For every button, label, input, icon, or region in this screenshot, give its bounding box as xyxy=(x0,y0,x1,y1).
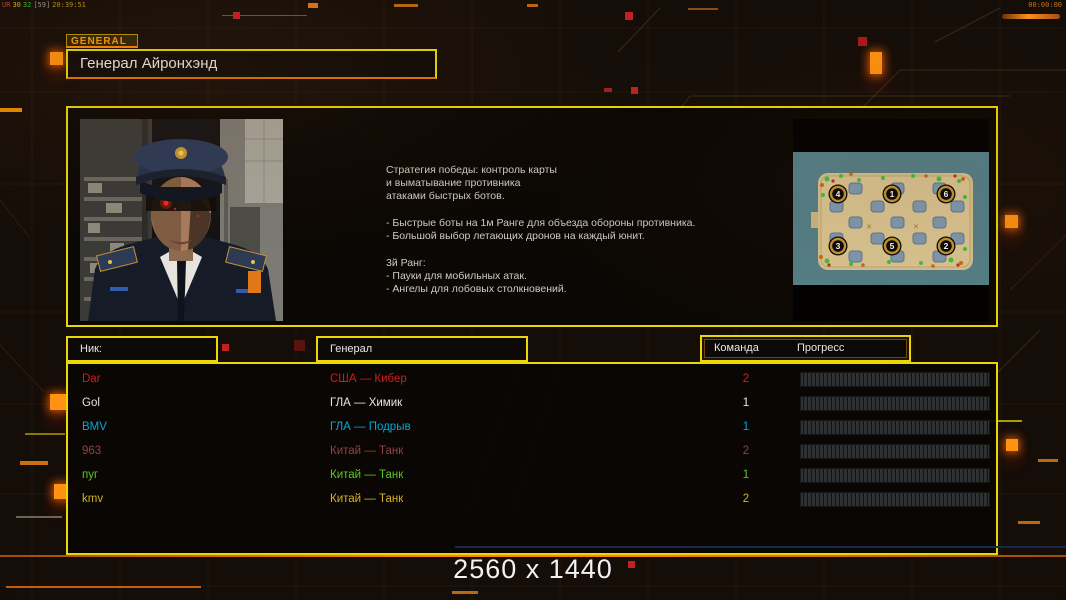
deco-glow-square xyxy=(1005,215,1018,228)
player-general: Китай — Танк xyxy=(330,493,403,505)
player-general: ГЛА — Подрыв xyxy=(330,421,411,433)
deco-dash xyxy=(20,461,48,465)
general-portrait xyxy=(80,119,283,321)
player-progress-bar xyxy=(800,444,990,459)
player-team: 1 xyxy=(736,421,756,433)
player-progress-bar xyxy=(800,396,990,411)
debug-value-2: 32 xyxy=(23,1,31,9)
lobby-screen: UR3032[59]20:39:51 00:00:00 GENERAL Гене… xyxy=(0,0,1066,600)
deco-glow-square xyxy=(50,394,66,410)
deco-navy-line xyxy=(455,546,1066,548)
deco-red-square xyxy=(625,12,633,20)
game-timer: 00:00:00 xyxy=(1028,1,1062,9)
svg-text:5: 5 xyxy=(890,241,895,251)
svg-text:1: 1 xyxy=(890,189,895,199)
map-preview: ✕✕ 4 1 6 3 5 2 xyxy=(793,119,989,321)
deco-glow-square xyxy=(1006,439,1018,451)
header-label: Ник: xyxy=(68,338,216,360)
player-row: Dar США — Кибер 2 xyxy=(68,368,996,392)
player-general: Китай — Танк xyxy=(330,469,403,481)
general-info-panel: Стратегия победы: контроль карты и вымат… xyxy=(66,106,998,327)
player-row: Gol ГЛА — Химик 1 xyxy=(68,392,996,416)
deco-glow-rect xyxy=(870,52,882,74)
svg-text:3: 3 xyxy=(836,241,841,251)
strategy-line: атаками быстрых ботов. xyxy=(386,190,806,203)
debug-stats-overlay: UR3032[59]20:39:51 xyxy=(2,1,88,9)
column-header-team-progress: Команда Прогресс xyxy=(700,335,911,362)
player-name: Dar xyxy=(82,373,101,385)
player-row: 963 Китай — Танк 2 xyxy=(68,440,996,464)
debug-value-1: 30 xyxy=(12,1,20,9)
player-team: 2 xyxy=(736,493,756,505)
player-name: 963 xyxy=(82,445,101,457)
general-title-box: Генерал Айронхэнд xyxy=(66,49,437,79)
strategy-line: - Быстрые боты на 1м Ранге для объезда о… xyxy=(386,217,806,230)
general-name: Генерал Айронхэнд xyxy=(68,51,435,77)
column-header-general: Генерал xyxy=(316,336,528,362)
deco-dash xyxy=(1038,459,1058,462)
player-name: kmv xyxy=(82,493,103,505)
player-team: 2 xyxy=(736,445,756,457)
deco-yellow-dash xyxy=(25,433,65,435)
deco-red-square xyxy=(222,344,229,351)
deco-red-square xyxy=(631,87,638,94)
svg-text:6: 6 xyxy=(944,189,949,199)
header-label-progress: Прогресс xyxy=(797,337,844,359)
player-team: 2 xyxy=(736,373,756,385)
strategy-line: 3й Ранг: xyxy=(386,257,806,270)
players-table: Dar США — Кибер 2 Gol ГЛА — Химик 1 BMV … xyxy=(66,362,998,555)
resolution-label: 2560 x 1440 xyxy=(0,554,1066,585)
player-progress-bar xyxy=(800,372,990,387)
deco-red-dash xyxy=(604,88,612,92)
svg-text:✕: ✕ xyxy=(913,223,919,231)
player-name: BMV xyxy=(82,421,107,433)
strategy-line: - Ангелы для лобовых столкновений. xyxy=(386,283,806,296)
player-name: пуг xyxy=(82,469,98,481)
player-row: kmv Китай — Танк 2 xyxy=(68,488,996,512)
deco-orange-line xyxy=(6,586,201,588)
svg-text:2: 2 xyxy=(944,241,949,251)
deco-dark-red-square xyxy=(294,340,305,351)
deco-orange-bar xyxy=(0,108,22,112)
column-header-nick: Ник: xyxy=(66,336,218,362)
player-team: 1 xyxy=(736,469,756,481)
strategy-line: - Большой выбор летающих дронов на кажды… xyxy=(386,230,806,243)
strategy-line: и выматывание противника xyxy=(386,177,806,190)
player-progress-bar xyxy=(800,468,990,483)
deco-red-square xyxy=(858,37,867,46)
player-progress-bar xyxy=(800,420,990,435)
svg-text:✕: ✕ xyxy=(866,223,872,231)
timer-bar xyxy=(1002,14,1060,19)
debug-label: UR xyxy=(2,1,10,9)
header-label-team: Команда xyxy=(714,337,759,359)
deco-red-square xyxy=(233,12,240,19)
player-progress-bar xyxy=(800,492,990,507)
deco-dash xyxy=(1018,521,1040,524)
player-general: ГЛА — Химик xyxy=(330,397,402,409)
strategy-line: Стратегия победы: контроль карты xyxy=(386,164,806,177)
debug-value-3: [59] xyxy=(33,1,50,9)
svg-text:4: 4 xyxy=(836,189,841,199)
player-general: США — Кибер xyxy=(330,373,407,385)
deco-pale-dash xyxy=(16,516,62,518)
deco-glow-square xyxy=(50,52,63,65)
strategy-line: - Пауки для мобильных атак. xyxy=(386,270,806,283)
deco-line xyxy=(688,8,718,10)
player-name: Gol xyxy=(82,397,100,409)
debug-time: 20:39:51 xyxy=(52,1,86,9)
deco-dash xyxy=(527,4,538,7)
deco-dash xyxy=(452,591,478,594)
player-row: BMV ГЛА — Подрыв 1 xyxy=(68,416,996,440)
player-row: пуг Китай — Танк 1 xyxy=(68,464,996,488)
header-label: Генерал xyxy=(318,338,526,360)
tab-general[interactable]: GENERAL xyxy=(66,34,138,48)
deco-dash xyxy=(394,4,418,7)
strategy-description: Стратегия победы: контроль карты и вымат… xyxy=(386,164,806,296)
player-general: Китай — Танк xyxy=(330,445,403,457)
deco-dash xyxy=(308,3,318,8)
player-team: 1 xyxy=(736,397,756,409)
